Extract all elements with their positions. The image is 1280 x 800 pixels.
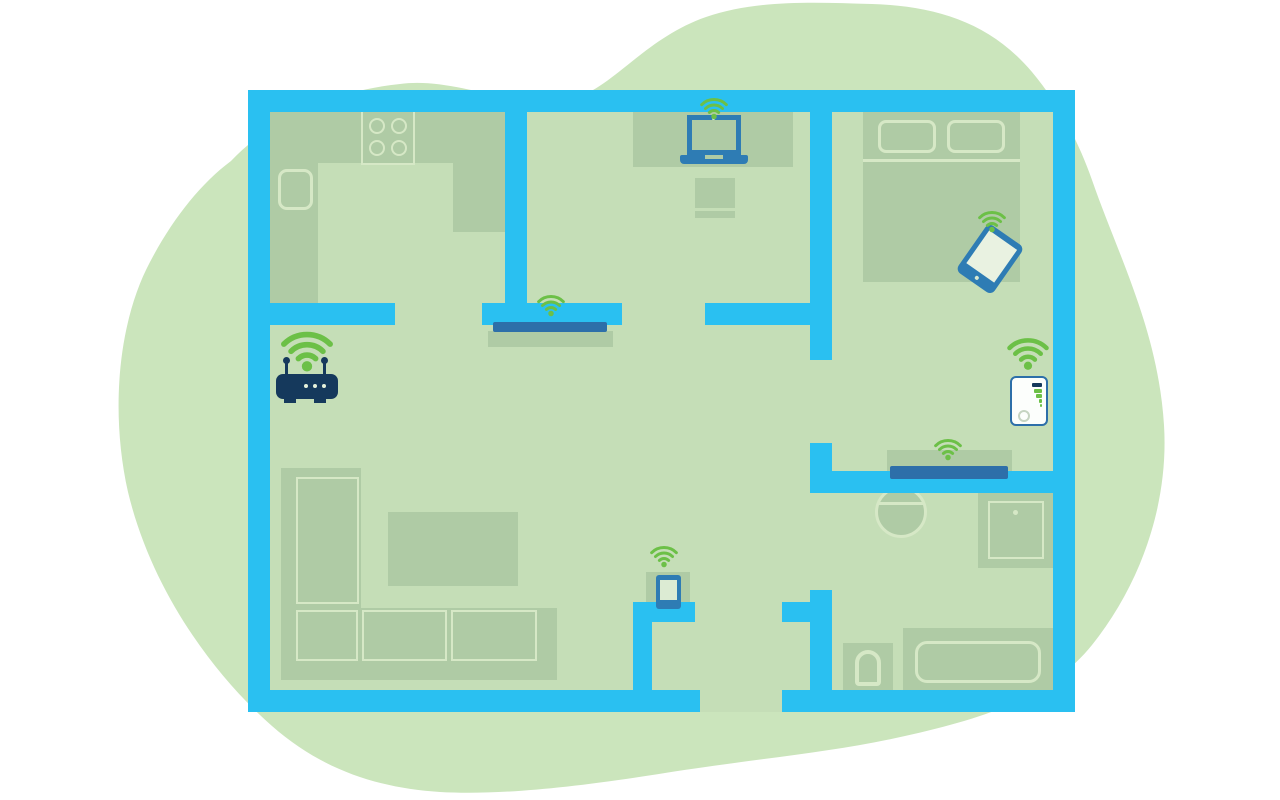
wifi-signal-icon bbox=[932, 435, 964, 461]
wifi-extender-icon bbox=[1010, 376, 1048, 426]
tv-screen-icon bbox=[890, 466, 1008, 479]
wall-right bbox=[1053, 90, 1075, 712]
stove-burner bbox=[369, 140, 385, 156]
wifi-signal-icon bbox=[1004, 332, 1052, 371]
stove-burner bbox=[391, 118, 407, 134]
wifi-signal-icon bbox=[535, 291, 567, 317]
smartphone-screen bbox=[660, 580, 677, 600]
laptop-screen bbox=[687, 115, 741, 155]
wall-entry-stub-right bbox=[782, 602, 810, 622]
wall-kitchen-bottom bbox=[270, 303, 395, 325]
stove-burner bbox=[369, 118, 385, 134]
toilet-icon bbox=[855, 650, 881, 686]
shower-head-dot bbox=[1013, 510, 1018, 515]
bathtub-inner bbox=[915, 641, 1041, 683]
desk-chair-seat bbox=[695, 211, 735, 218]
kitchen-counter-right bbox=[453, 163, 507, 232]
wall-bedroom-lower bbox=[810, 590, 832, 712]
wifi-signal-icon bbox=[277, 324, 337, 373]
floorplan-illustration bbox=[0, 0, 1280, 800]
extender-dot-green bbox=[1040, 404, 1043, 407]
bed-blanket-line bbox=[863, 159, 1020, 162]
router-led bbox=[304, 384, 308, 388]
wall-top bbox=[248, 90, 1075, 112]
bathroom-sink-edge bbox=[879, 502, 923, 505]
sofa-cushion bbox=[451, 610, 537, 661]
wall-left bbox=[248, 90, 270, 712]
desk-chair-back bbox=[695, 178, 735, 208]
tablet-home-dot bbox=[974, 275, 980, 281]
stove-icon bbox=[361, 110, 415, 165]
extender-bar-green bbox=[1039, 399, 1043, 403]
pillow bbox=[947, 120, 1005, 153]
smartphone-icon bbox=[656, 575, 681, 609]
sofa-cushion bbox=[296, 477, 359, 604]
tv-console-living bbox=[488, 331, 613, 347]
sofa-cushion bbox=[296, 610, 358, 661]
wifi-signal-icon bbox=[648, 542, 680, 568]
wifi-signal-icon bbox=[976, 207, 1008, 233]
router-led bbox=[322, 384, 326, 388]
router-foot bbox=[314, 398, 326, 403]
kitchen-sink-icon bbox=[278, 169, 313, 210]
wall-kitchen-vertical bbox=[505, 112, 527, 305]
wall-entry-left-vertical bbox=[633, 622, 652, 712]
pillow bbox=[878, 120, 936, 153]
router-foot bbox=[284, 398, 296, 403]
router-led bbox=[313, 384, 317, 388]
wall-bedroom-upper bbox=[810, 112, 832, 360]
stove-burner bbox=[391, 140, 407, 156]
sofa-cushion bbox=[362, 610, 447, 661]
extender-bar-green bbox=[1036, 394, 1042, 398]
tv-screen-icon bbox=[493, 322, 607, 332]
laptop-base-notch bbox=[705, 155, 723, 159]
bathroom-sink-icon bbox=[875, 486, 927, 538]
extender-wps-button bbox=[1018, 410, 1030, 422]
extender-bar-dark bbox=[1032, 383, 1042, 387]
extender-bar-green bbox=[1034, 389, 1042, 393]
wifi-signal-icon bbox=[698, 94, 730, 120]
coffee-table bbox=[388, 512, 518, 586]
